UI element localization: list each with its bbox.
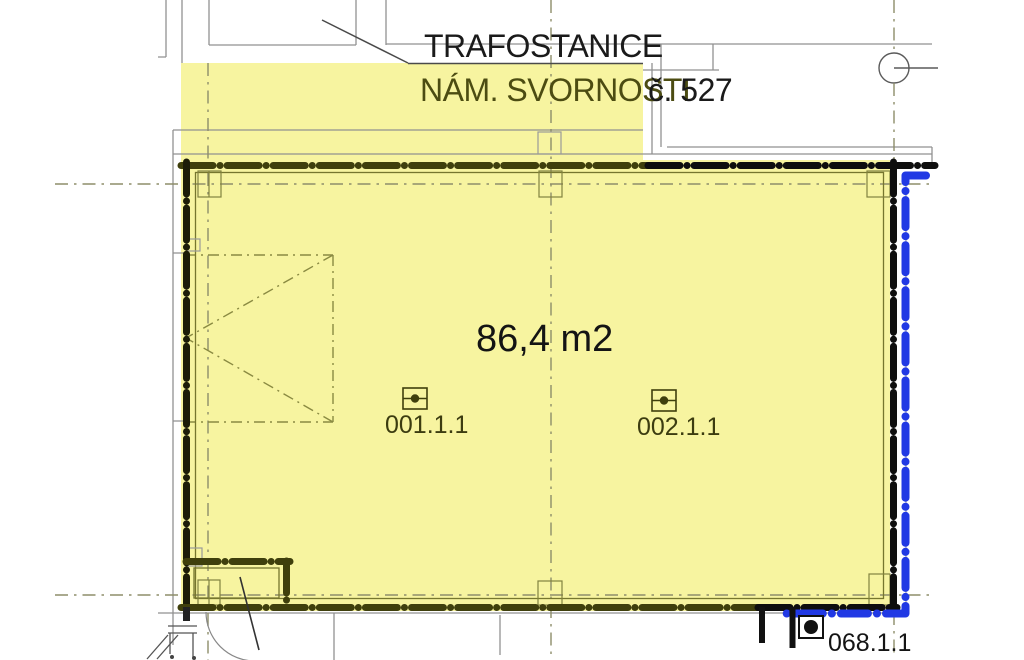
room-1-label: 001.1.1 xyxy=(385,411,468,439)
room-1-symbol-dot xyxy=(411,394,419,402)
area-label: 86,4 m2 xyxy=(476,318,613,360)
highlight-main-room xyxy=(181,160,890,611)
steps-dot-2 xyxy=(192,656,196,660)
room-3-label: 068.1.1 xyxy=(828,629,911,657)
steps-dot-1 xyxy=(170,655,174,659)
column-marker-dot xyxy=(804,620,818,634)
room-2-label: 002.1.1 xyxy=(637,413,720,441)
building-label: TRAFOSTANICE xyxy=(424,28,663,64)
floor-plan-svg: TRAFOSTANICE NÁM. SVORNOSTI č. 527 86,4 … xyxy=(0,0,1024,660)
room-2-symbol-dot xyxy=(660,396,668,404)
address-number-label: č. 527 xyxy=(648,72,732,108)
floor-plan-canvas: TRAFOSTANICE NÁM. SVORNOSTI č. 527 86,4 … xyxy=(0,0,1024,660)
